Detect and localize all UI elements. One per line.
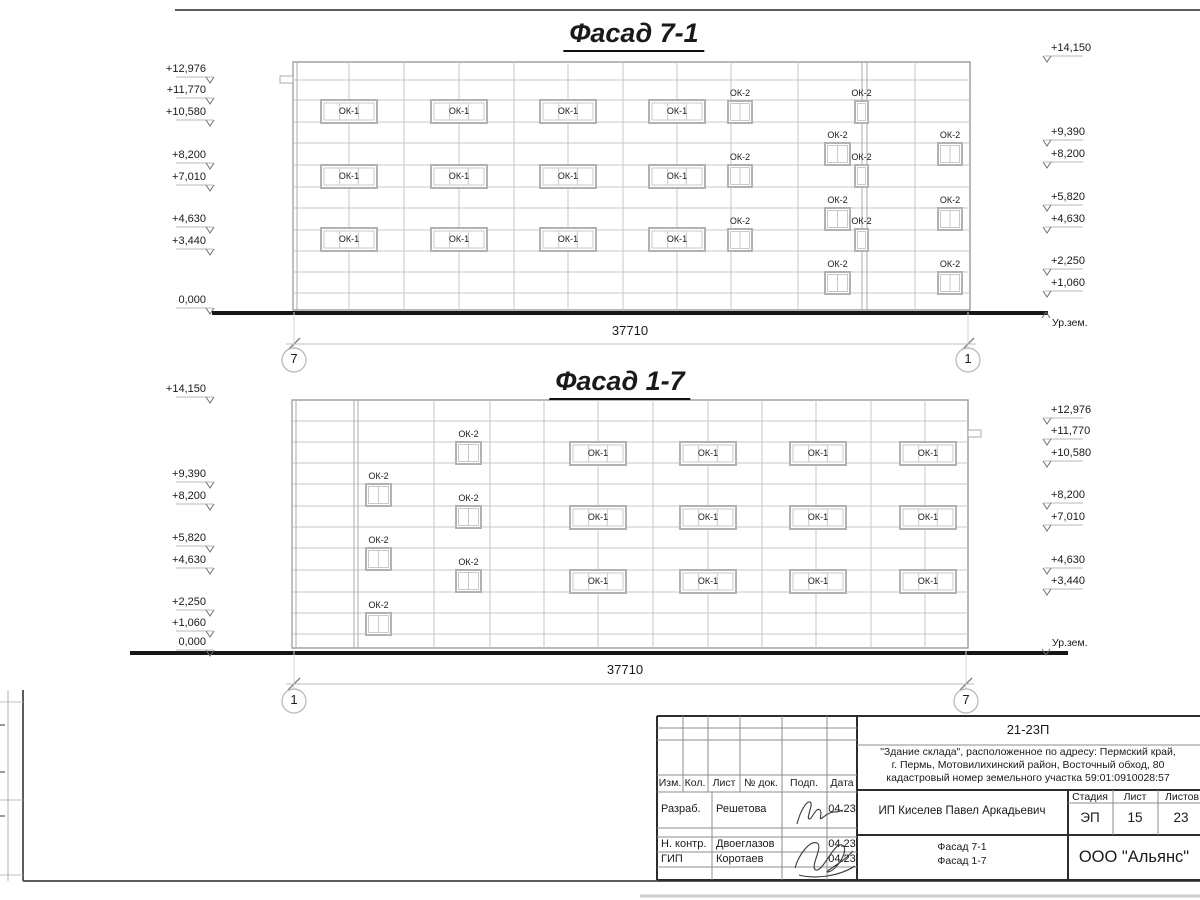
sheets-total: 23 bbox=[1173, 810, 1188, 826]
project-code: 21-23П bbox=[1007, 723, 1050, 738]
window-ok1-tag: ОК-1 bbox=[808, 512, 828, 522]
elevation-mark-tick bbox=[1043, 503, 1051, 509]
window-ok2-tag: ОК-2 bbox=[458, 557, 478, 567]
company-name: ООО "Альянс" bbox=[1079, 848, 1189, 867]
client-name: ИП Киселев Павел Аркадьевич bbox=[879, 805, 1046, 818]
elevation-mark-label: +5,820 bbox=[118, 532, 206, 545]
window-ok1-tag: ОК-1 bbox=[667, 234, 687, 244]
elevation-mark-tick bbox=[1043, 291, 1051, 297]
tb-name-dvoeglazov: Двоеглазов bbox=[716, 838, 774, 851]
elevation-mark-label: +10,580 bbox=[1051, 447, 1091, 460]
ground-level-label: Ур.зем. bbox=[1052, 317, 1088, 329]
elevation-mark-tick bbox=[206, 163, 214, 169]
overall-dimension: 37710 bbox=[612, 324, 648, 339]
elevation-mark-tick bbox=[206, 546, 214, 552]
elevation-mark-label: +8,200 bbox=[118, 149, 206, 162]
window-ok1-tag: ОК-1 bbox=[449, 171, 469, 181]
grid-bubble-number: 7 bbox=[290, 352, 297, 367]
elevation-mark-label: +1,060 bbox=[118, 617, 206, 630]
elevation-mark-tick bbox=[206, 504, 214, 510]
elevation-mark-tick bbox=[1043, 205, 1051, 211]
elevation-mark-label: +12,976 bbox=[1051, 404, 1091, 417]
window-ok2-tag: ОК-2 bbox=[368, 600, 388, 610]
canopy-notch bbox=[280, 76, 293, 83]
window-ok2-tag: ОК-2 bbox=[730, 152, 750, 162]
facade-7-1-title: Фасад 7-1 bbox=[563, 18, 704, 52]
sheet-doc-title: Фасад 7-1 Фасад 1-7 bbox=[937, 841, 986, 868]
window-ok2-tag: ОК-2 bbox=[730, 216, 750, 226]
tb-role-nkontr: Н. контр. bbox=[661, 838, 706, 851]
elevation-mark-label: +14,150 bbox=[118, 383, 206, 396]
facade-1-7-title: Фасад 1-7 bbox=[549, 366, 690, 400]
elevation-mark-label: 0,000 bbox=[118, 294, 206, 307]
window-ok1-tag: ОК-1 bbox=[339, 234, 359, 244]
elevation-mark-label: +2,250 bbox=[1051, 255, 1085, 268]
elevation-mark-label: +11,770 bbox=[1051, 425, 1090, 438]
elevation-mark-label: +11,770 bbox=[118, 84, 206, 97]
window-ok2-tag: ОК-2 bbox=[827, 130, 847, 140]
elevation-mark-label: +3,440 bbox=[118, 235, 206, 248]
window-ok1-tag: ОК-1 bbox=[339, 106, 359, 116]
elevation-mark-label: +4,630 bbox=[1051, 554, 1085, 567]
elevation-mark-label: +4,630 bbox=[118, 213, 206, 226]
elevation-mark-label: +9,390 bbox=[118, 468, 206, 481]
elevation-mark-tick bbox=[206, 610, 214, 616]
elevation-mark-tick bbox=[206, 482, 214, 488]
elevation-mark-tick bbox=[206, 249, 214, 255]
window-ok2-tag: ОК-2 bbox=[851, 152, 871, 162]
elevation-mark-label: +2,250 bbox=[118, 596, 206, 609]
elevation-mark-label: +12,976 bbox=[118, 63, 206, 76]
window-ok2 bbox=[855, 101, 868, 123]
window-ok1-tag: ОК-1 bbox=[588, 576, 608, 586]
window-ok1-tag: ОК-1 bbox=[808, 576, 828, 586]
elevation-mark-tick bbox=[206, 77, 214, 83]
sheets-label: Листов bbox=[1165, 791, 1199, 803]
tb-col-list: Лист bbox=[713, 777, 736, 789]
tb-role-gip: ГИП bbox=[661, 853, 683, 866]
tb-date-gip: 04.23 bbox=[828, 853, 856, 866]
elevation-mark-label: +10,580 bbox=[118, 106, 206, 119]
stage-label: Стадия bbox=[1072, 791, 1108, 803]
elevation-mark-label: +4,630 bbox=[1051, 213, 1085, 226]
elevation-mark-tick bbox=[1043, 56, 1051, 62]
elevation-mark-tick bbox=[206, 227, 214, 233]
window-ok2-tag: ОК-2 bbox=[368, 471, 388, 481]
elevation-mark-label: +8,200 bbox=[1051, 148, 1085, 161]
tb-col-data: Дата bbox=[830, 777, 853, 789]
window-ok1-tag: ОК-1 bbox=[558, 171, 578, 181]
elevation-mark-tick bbox=[1043, 140, 1051, 146]
tb-col-ndok: № док. bbox=[744, 777, 778, 789]
elevation-mark-label: +7,010 bbox=[1051, 511, 1085, 524]
drawing-sheet: Фасад 7-1 Фасад 1-7 21-23П "Здание склад… bbox=[0, 0, 1200, 900]
overall-dimension: 37710 bbox=[607, 663, 643, 678]
elevation-mark-tick bbox=[206, 568, 214, 574]
tb-name-korotaev: Коротаев bbox=[716, 853, 764, 866]
window-ok2 bbox=[855, 229, 868, 251]
window-ok2-tag: ОК-2 bbox=[827, 259, 847, 269]
grid-bubble-number: 7 bbox=[962, 693, 969, 708]
window-ok2-tag: ОК-2 bbox=[940, 130, 960, 140]
window-ok1-tag: ОК-1 bbox=[698, 576, 718, 586]
window-ok2-tag: ОК-2 bbox=[827, 195, 847, 205]
window-ok1-tag: ОК-1 bbox=[667, 171, 687, 181]
elevation-mark-label: +8,200 bbox=[118, 490, 206, 503]
sheet-label: Лист bbox=[1124, 791, 1147, 803]
window-ok1-tag: ОК-1 bbox=[449, 106, 469, 116]
window-ok2-tag: ОК-2 bbox=[940, 259, 960, 269]
window-ok1-tag: ОК-1 bbox=[558, 234, 578, 244]
project-address: "Здание склада", расположенное по адресу… bbox=[858, 746, 1198, 784]
window-ok1-tag: ОК-1 bbox=[588, 512, 608, 522]
elevation-mark-tick bbox=[206, 631, 214, 637]
grid-bubble-number: 1 bbox=[964, 352, 971, 367]
elevation-mark-label: +1,060 bbox=[1051, 277, 1085, 290]
sheet-number: 15 bbox=[1127, 810, 1142, 826]
elevation-mark-tick bbox=[1043, 227, 1051, 233]
elevation-mark-label: +4,630 bbox=[118, 554, 206, 567]
window-ok1-tag: ОК-1 bbox=[698, 448, 718, 458]
window-ok2-tag: ОК-2 bbox=[851, 216, 871, 226]
window-ok1-tag: ОК-1 bbox=[588, 448, 608, 458]
elevation-mark-label: +3,440 bbox=[1051, 575, 1085, 588]
elevation-mark-label: 0,000 bbox=[118, 636, 206, 649]
elevation-mark-tick bbox=[206, 397, 214, 403]
window-ok2-tag: ОК-2 bbox=[851, 88, 871, 98]
tb-date-razrab: 04.23 bbox=[828, 803, 856, 816]
facade-outline bbox=[292, 400, 968, 648]
elevation-mark-label: +5,820 bbox=[1051, 191, 1085, 204]
window-ok2-tag: ОК-2 bbox=[368, 535, 388, 545]
window-ok1-tag: ОК-1 bbox=[339, 171, 359, 181]
tb-col-podp: Подп. bbox=[790, 777, 818, 789]
stage-value: ЭП bbox=[1080, 810, 1099, 826]
elevation-mark-tick bbox=[206, 120, 214, 126]
window-ok1-tag: ОК-1 bbox=[918, 448, 938, 458]
elevation-mark-label: +7,010 bbox=[118, 171, 206, 184]
tb-name-reshetova: Решетова bbox=[716, 803, 766, 816]
tb-col-izm: Изм. bbox=[659, 777, 682, 789]
elevation-mark-tick bbox=[1043, 418, 1051, 424]
window-ok2-tag: ОК-2 bbox=[730, 88, 750, 98]
elevation-mark-tick bbox=[1043, 269, 1051, 275]
window-ok2-tag: ОК-2 bbox=[940, 195, 960, 205]
window-ok2 bbox=[855, 165, 868, 187]
elevation-mark-tick bbox=[1043, 461, 1051, 467]
tb-col-kol: Кол. bbox=[685, 777, 706, 789]
window-ok1-tag: ОК-1 bbox=[667, 106, 687, 116]
elevation-mark-tick bbox=[1043, 525, 1051, 531]
window-ok1-tag: ОК-1 bbox=[449, 234, 469, 244]
elevation-mark-tick bbox=[206, 98, 214, 104]
window-ok1-tag: ОК-1 bbox=[698, 512, 718, 522]
window-ok1-tag: ОК-1 bbox=[558, 106, 578, 116]
tb-role-razrab: Разраб. bbox=[661, 803, 701, 816]
ground-level-label: Ур.зем. bbox=[1052, 637, 1088, 649]
window-ok2-tag: ОК-2 bbox=[458, 429, 478, 439]
window-ok1-tag: ОК-1 bbox=[808, 448, 828, 458]
elevation-mark-tick bbox=[206, 185, 214, 191]
grid-bubble-number: 1 bbox=[290, 693, 297, 708]
canopy-notch bbox=[968, 430, 981, 437]
elevation-mark-tick bbox=[1043, 439, 1051, 445]
elevation-mark-label: +14,150 bbox=[1051, 42, 1091, 55]
elevation-mark-tick bbox=[1043, 589, 1051, 595]
elevation-mark-label: +8,200 bbox=[1051, 489, 1085, 502]
window-ok1-tag: ОК-1 bbox=[918, 512, 938, 522]
elevation-mark-tick bbox=[1043, 568, 1051, 574]
tb-date-nkontr: 04.23 bbox=[828, 838, 856, 851]
window-ok1-tag: ОК-1 bbox=[918, 576, 938, 586]
elevation-mark-tick bbox=[1043, 162, 1051, 168]
window-ok2-tag: ОК-2 bbox=[458, 493, 478, 503]
elevation-mark-label: +9,390 bbox=[1051, 126, 1085, 139]
